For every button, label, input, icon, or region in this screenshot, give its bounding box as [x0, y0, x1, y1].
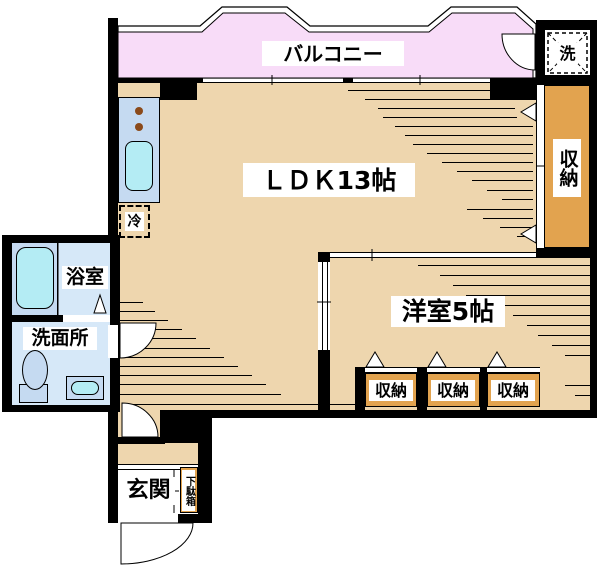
- ldk-label: ＬＤＫ13帖: [243, 163, 415, 197]
- door-triangle: [521, 225, 536, 243]
- washer-label: 洗: [557, 43, 578, 64]
- balcony-label: バルコニー: [262, 41, 404, 66]
- closet-label-3: 収納: [491, 380, 535, 401]
- washroom-label: 洗面所: [23, 327, 97, 350]
- washroom-door-swing: [120, 323, 156, 358]
- closet-label-1: 収納: [369, 380, 413, 401]
- entrance-label: 玄関: [122, 477, 175, 505]
- door-triangle: [94, 295, 106, 313]
- fridge-label: 冷: [125, 212, 144, 231]
- door-triangle: [521, 103, 536, 121]
- door-triangle: [428, 352, 446, 367]
- door-triangle: [366, 352, 384, 367]
- entrance-door-swing: [121, 523, 193, 564]
- shoe-cabinet-label: 下駄箱: [182, 470, 195, 511]
- ldk-door-swing: [122, 403, 158, 437]
- floor-plan: バルコニー ＬＤＫ13帖 洋室5帖 収納 洗 冷 収納 収納 収納 浴室 洗面所…: [0, 0, 600, 569]
- western-room-label: 洋室5帖: [391, 296, 505, 327]
- bathroom-label: 浴室: [62, 266, 108, 289]
- storage-right-label: 収納: [553, 139, 581, 197]
- closet-label-2: 収納: [431, 380, 475, 401]
- door-triangle: [488, 352, 506, 367]
